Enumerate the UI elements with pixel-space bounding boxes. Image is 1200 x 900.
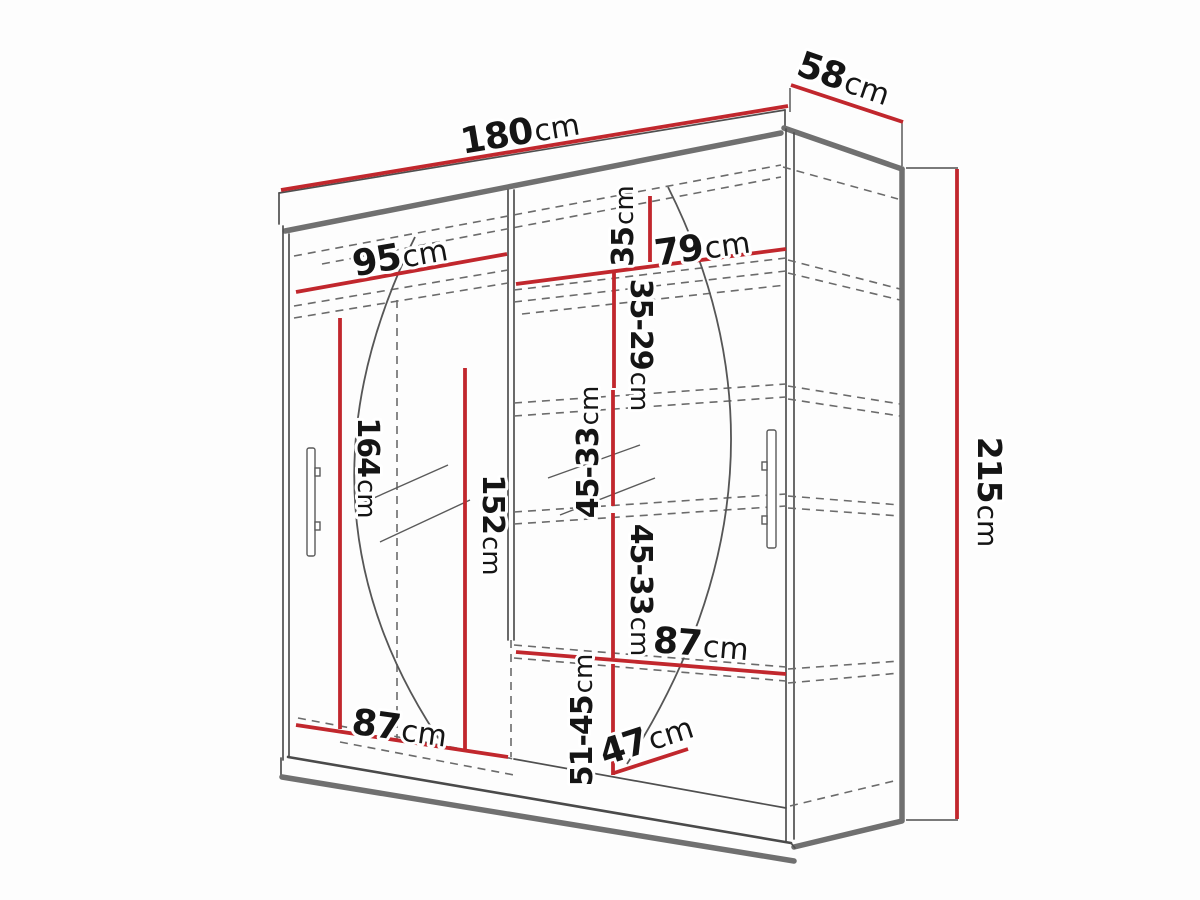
side-panel-right bbox=[784, 128, 902, 847]
left-front-edge bbox=[283, 226, 289, 760]
dim-label-right-shelf-width: 87cm bbox=[651, 620, 750, 669]
dim-label-top-shelf-gap: 35cm bbox=[606, 185, 641, 266]
wardrobe-technical-drawing: 180cm 58cm 215cm 95cm 79cm 35cm 35-29cm … bbox=[0, 0, 1200, 900]
door-handle-right bbox=[762, 430, 776, 548]
dim-label-shelf-gap-2: 45-33cm bbox=[571, 386, 606, 519]
wardrobe-dimension-diagram: 180cm 58cm 215cm 95cm 79cm 35cm 35-29cm … bbox=[0, 0, 1200, 900]
dim-label-shelf-gap-1: 35-29cm bbox=[623, 279, 658, 412]
dim-label-left-bottom-width: 87cm bbox=[349, 702, 450, 756]
dim-label-right-top-width: 79cm bbox=[652, 221, 753, 275]
dimension-extension-lines bbox=[790, 88, 958, 820]
crown-panel bbox=[279, 110, 785, 231]
door-arc-right bbox=[627, 187, 731, 764]
dim-label-bottom-shelf-gap: 51-45cm bbox=[565, 654, 600, 787]
dim-label-height: 215cm bbox=[970, 437, 1009, 548]
right-front-edge bbox=[786, 129, 794, 841]
door-handle-left bbox=[307, 448, 320, 556]
base-plinth bbox=[281, 757, 795, 861]
dim-label-left-top-width: 95cm bbox=[349, 228, 450, 285]
dim-label-mirror-height: 152cm bbox=[475, 474, 510, 575]
dim-label-hanging-height: 164cm bbox=[350, 417, 385, 518]
